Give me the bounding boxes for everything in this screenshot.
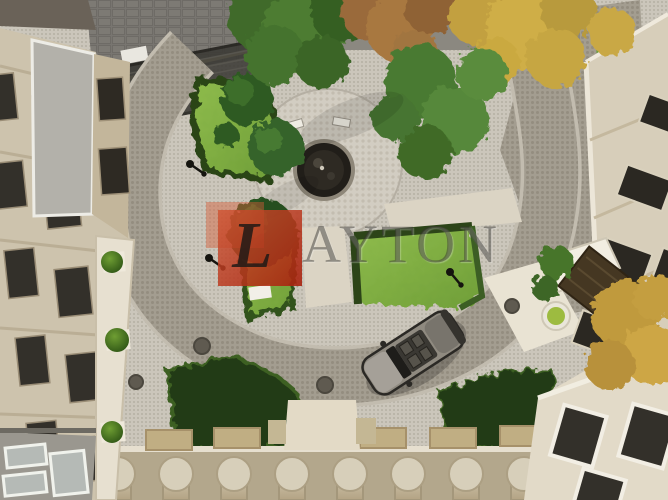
skylight-roof xyxy=(0,428,96,500)
walkway-south xyxy=(302,226,352,308)
lawn-wedge-east xyxy=(354,226,482,308)
water-highlight xyxy=(320,166,324,170)
lamp xyxy=(206,255,226,271)
courtyard-render: L AYTON xyxy=(0,0,668,500)
gable-wall xyxy=(32,40,94,216)
scene-svg xyxy=(0,0,668,500)
roof-corner xyxy=(0,0,96,30)
planter-bush xyxy=(547,307,565,325)
left-building xyxy=(0,28,134,500)
